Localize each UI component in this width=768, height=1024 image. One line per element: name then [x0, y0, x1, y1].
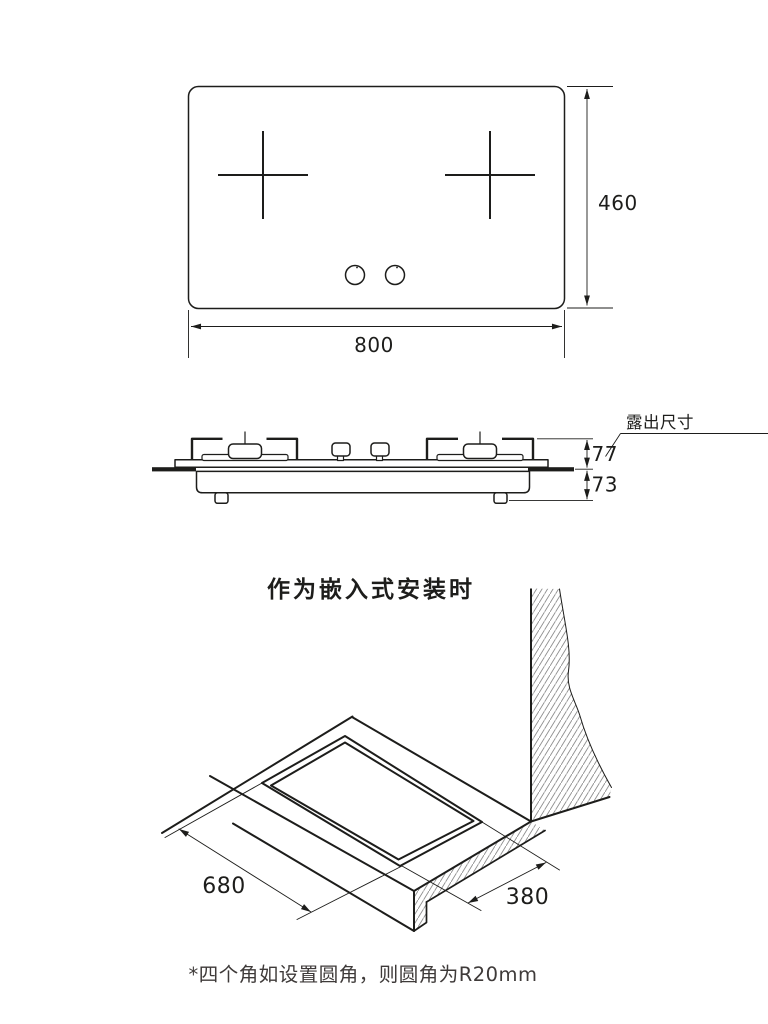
exposed-callout: 露出尺寸 — [606, 413, 768, 457]
exposed-callout-label: 露出尺寸 — [626, 413, 694, 432]
right-knob — [386, 266, 405, 285]
right-foot — [494, 493, 507, 504]
cutout-depth-label: 380 — [506, 885, 550, 910]
corner-radius-note: *四个角如设置圆角，则圆角为R20mm — [188, 963, 537, 986]
above-counter-label: 77 — [592, 442, 618, 466]
width-label: 800 — [354, 333, 394, 357]
below-counter-label: 73 — [592, 473, 618, 497]
left-foot — [215, 493, 228, 504]
cutout-length-label: 680 — [202, 874, 246, 899]
side-view: 77 73 露出尺寸 — [152, 413, 768, 503]
right-burner-cap — [464, 444, 497, 459]
left-knob — [346, 266, 365, 285]
cooktop-outline — [189, 87, 565, 309]
right-knob-mark — [396, 267, 398, 269]
counter-edge-right — [528, 467, 574, 471]
right-knob-profile — [371, 443, 389, 456]
installation-heading: 作为嵌入式安装时 — [267, 576, 475, 603]
cooktop-body — [197, 471, 530, 492]
dim-height: 460 — [567, 87, 638, 309]
left-knob-profile — [332, 443, 350, 456]
left-burner-cap — [229, 444, 262, 459]
top-view: 460 800 — [189, 87, 638, 359]
cooktop-dimension-diagram: 460 800 — [0, 0, 768, 1024]
wall-hatch — [531, 589, 612, 822]
height-label: 460 — [598, 191, 638, 215]
installation-view: 作为嵌入式安装时 680 380 — [162, 576, 612, 986]
callout-leader-line — [606, 434, 768, 457]
left-knob-mark — [356, 267, 358, 269]
cutout-outer — [262, 736, 482, 866]
dim-width: 800 — [189, 310, 565, 358]
counter-edge-left — [152, 467, 196, 471]
diagram-canvas: 460 800 — [0, 0, 768, 1024]
